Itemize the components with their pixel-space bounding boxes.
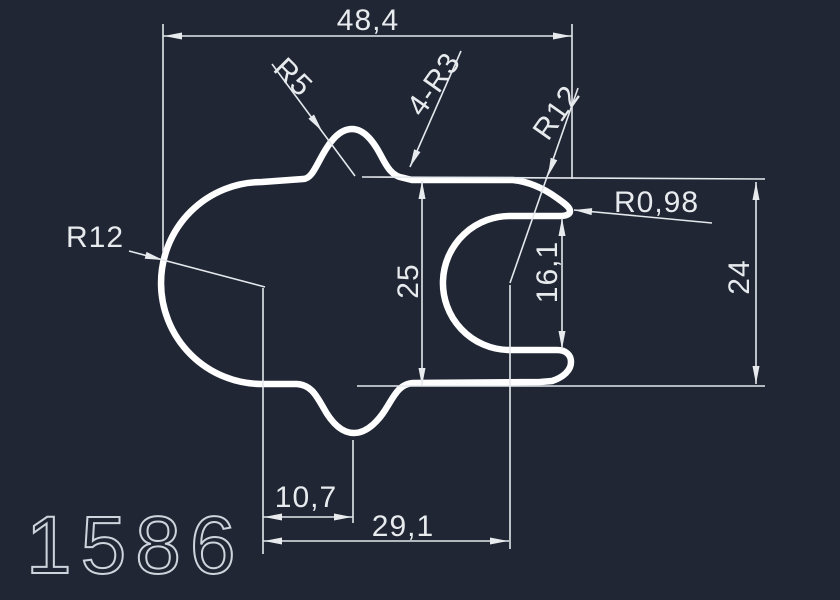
arrowhead-width-left bbox=[164, 33, 182, 40]
dim-text-107: 10,7 bbox=[275, 481, 337, 514]
arrowhead-r098 bbox=[574, 208, 592, 215]
dim-text-r5: R5 bbox=[267, 52, 319, 104]
arrowhead-4r3 bbox=[410, 149, 421, 167]
dim-text-24: 24 bbox=[723, 259, 756, 294]
arrowhead-291-left bbox=[264, 538, 282, 545]
arrowhead-107-left bbox=[264, 514, 282, 521]
cad-viewport[interactable]: 48,4 R5 4-R3 R12 R0,98 R12 25 16,1 24 10… bbox=[0, 0, 840, 600]
dim-text-25: 25 bbox=[392, 263, 425, 298]
arrowhead-107-right bbox=[334, 514, 352, 521]
dim-text-161: 16,1 bbox=[531, 241, 564, 303]
dim-text-r098: R0,98 bbox=[614, 186, 699, 219]
cad-drawing-view: 48,4 R5 4-R3 R12 R0,98 R12 25 16,1 24 10… bbox=[0, 0, 840, 600]
arrowhead-r12-right bbox=[548, 158, 557, 176]
arrowhead-291-right bbox=[490, 538, 508, 545]
arrowhead-width-right bbox=[553, 33, 571, 40]
arrowhead-161-down bbox=[559, 331, 566, 349]
dim-text-overall-width: 48,4 bbox=[337, 4, 399, 37]
arrowhead-r12-left bbox=[145, 252, 163, 260]
dim-text-r12-left: R12 bbox=[66, 221, 124, 254]
arrowhead-24-up bbox=[753, 182, 760, 200]
arrowhead-25-up bbox=[419, 181, 426, 199]
arrowhead-161-up bbox=[559, 218, 566, 236]
part-number-text: 1586 bbox=[26, 500, 244, 591]
arrowhead-24-down bbox=[753, 366, 760, 384]
dim-text-291: 29,1 bbox=[372, 510, 434, 543]
